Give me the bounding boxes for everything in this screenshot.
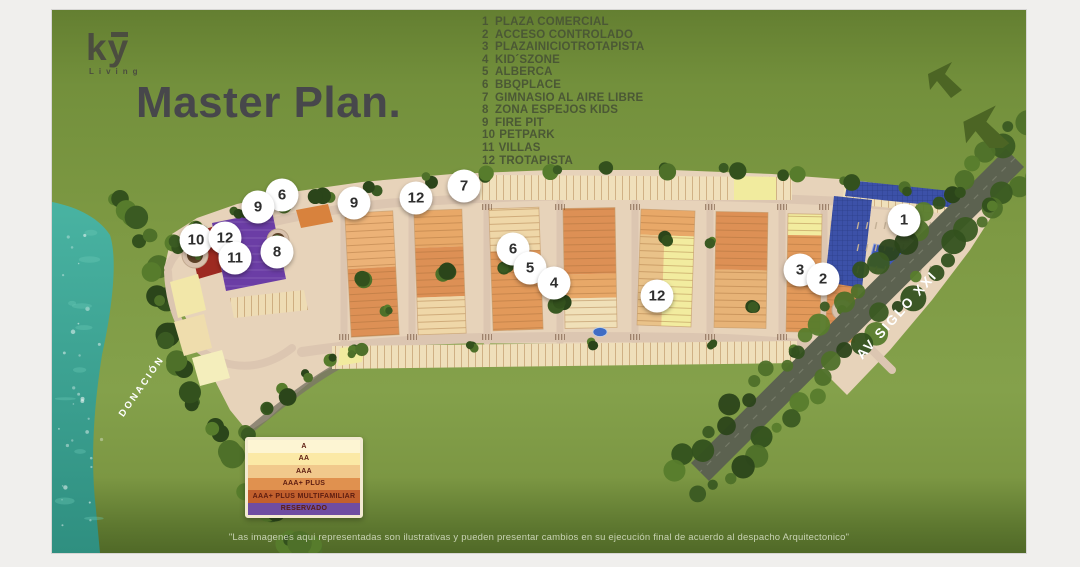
pool [593,328,607,337]
legend-item-4: 4KID´SZONE [482,54,644,67]
legend-item-11: 11VILLAS [482,142,644,155]
north-arrows-icon [924,52,1020,148]
legend-item-10: 10PETPARK [482,129,644,142]
key-row-aaa: AAA [248,465,360,478]
key-row-aaa-plus-multifamiliar: AAA+ PLUS MULTIFAMILIAR [248,490,360,503]
legend-item-12: 12TROTAPISTA [482,155,644,168]
lot-type-key: AAAAAAAAA+ PLUSAAA+ PLUS MULTIFAMILIARRE… [245,437,363,518]
legend-item-7: 7GIMNASIO AL AIRE LIBRE [482,92,644,105]
page-title: Master Plan. [136,78,401,128]
key-row-aaa-plus: AAA+ PLUS [248,478,360,491]
logo-wordmark: ky [86,30,129,66]
amenities-legend: 1PLAZA COMERCIAL2ACCESO CONTROLADO3PLAZA… [482,16,644,167]
legend-item-9: 9FIRE PIT [482,117,644,130]
key-row-reservado: RESERVADO [248,503,360,516]
disclaimer-text: "Las imagenes aqui representadas son ilu… [52,532,1026,543]
legend-item-5: 5ALBERCA [482,66,644,79]
master-plan-poster: AV SIGLO XXI DONACIÓN ky Living Master P… [52,10,1026,553]
legend-item-8: 8ZONA ESPEJOS KIDS [482,104,644,117]
key-row-a: A [248,440,360,453]
donacion-label: DONACIÓN [116,353,167,419]
logo-subtext: Living [89,67,196,76]
legend-item-3: 3PLAZAINICIOTROTAPISTA [482,41,644,54]
legend-item-2: 2ACCESO CONTROLADO [482,29,644,42]
key-row-aa: AA [248,453,360,466]
legend-item-1: 1PLAZA COMERCIAL [482,16,644,29]
legend-item-6: 6BBQPLACE [482,79,644,92]
